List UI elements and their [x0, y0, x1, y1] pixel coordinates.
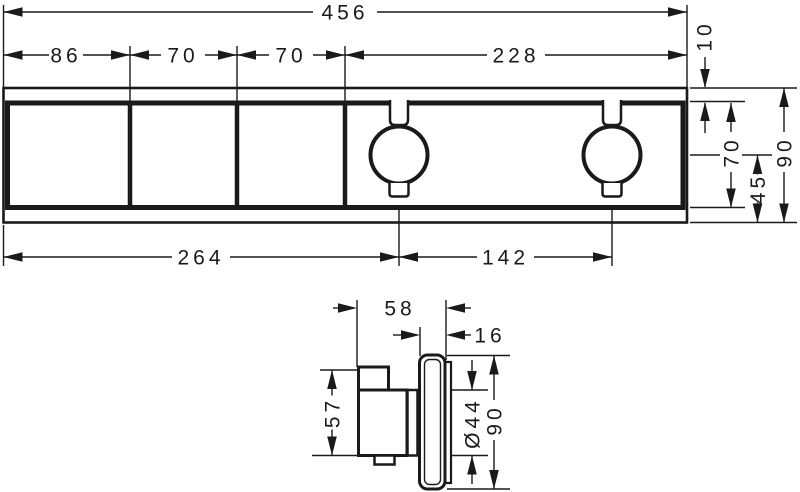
handle-collar	[408, 390, 418, 456]
dim-456-label: 456	[321, 2, 368, 25]
dim-264-label: 264	[177, 247, 224, 270]
technical-drawing: 456 86 70 70 228	[0, 0, 800, 492]
handle-foot	[375, 456, 395, 465]
knob-tab	[603, 183, 622, 197]
knob-tab	[390, 183, 409, 197]
dim-70a-label: 70	[167, 45, 198, 68]
dim-90-side-label: 90	[484, 404, 507, 435]
dim-57-label: 57	[322, 397, 345, 428]
knob-circle	[371, 127, 428, 184]
dim-70b-label: 70	[275, 45, 306, 68]
knob-circle	[584, 127, 641, 184]
knob-stem	[603, 100, 621, 125]
dim-45-label: 45	[747, 173, 770, 204]
dim-90-label: 90	[774, 136, 797, 167]
dim-diameter-44-label: Ø44	[462, 397, 485, 449]
knob-stem	[390, 100, 408, 125]
dim-16-label: 16	[474, 325, 505, 348]
dim-10-label: 10	[694, 20, 717, 51]
dim-70-height-label: 70	[721, 136, 744, 167]
handle-step	[359, 367, 389, 391]
handle-body	[359, 390, 408, 456]
drawing-canvas: 456 86 70 70 228	[0, 0, 800, 492]
dim-228-label: 228	[492, 45, 539, 68]
dim-142-label: 142	[482, 247, 529, 270]
dim-86-label: 86	[50, 45, 81, 68]
dim-58-label: 58	[384, 298, 415, 321]
